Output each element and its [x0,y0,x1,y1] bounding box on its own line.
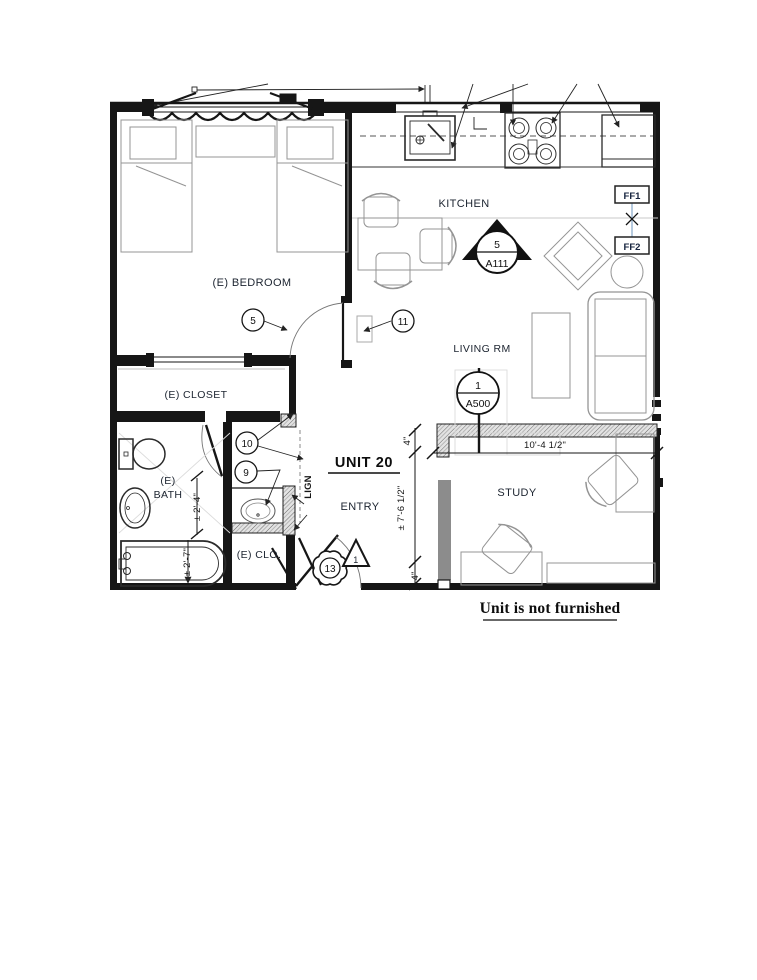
bed-left [121,120,192,252]
label-entry: ENTRY [340,501,379,513]
bed-right [277,120,348,252]
chair [376,253,410,285]
ff1-tag: FF1 [624,191,642,202]
lounge-chair [544,222,612,290]
keynote-numbers: 5 11 10 9 13 1 [241,316,408,575]
keynote-leaders [257,321,391,530]
chair [364,197,398,227]
keynote-11: 11 [398,317,409,328]
ff-tags: FF1 FF2 [615,186,649,254]
label-bedroom: (E) BEDROOM [213,277,292,289]
ff2-tag: FF2 [624,242,641,253]
desk-chair [479,518,536,575]
desk [616,434,654,512]
bedroom-door-swing [290,303,343,358]
study-furniture [461,434,655,585]
kitchen-fixtures [352,111,655,168]
unit-label: UNIT 20 [335,455,393,471]
label-living: LIVING RM [453,343,510,355]
label-study: STUDY [497,487,537,499]
bath-door-leaf [206,425,222,476]
dim-bath-width: ± 2'-4" [192,493,203,521]
section-sheet: A111 [486,258,509,270]
label-kitchen: KITCHEN [438,198,489,210]
ottoman [611,256,643,288]
label-clo: (E) CLO. [237,549,282,561]
dim-offset-bottom: 4" [410,571,421,580]
label-bath-1: (E) [160,475,175,487]
keynote-10: 10 [241,439,253,450]
section-marker-a111: 5 A111 [462,219,532,273]
detail-marker-a500: 1 A500 [457,372,499,414]
keynote-9: 9 [243,468,249,479]
align-note: LIGN [303,475,314,499]
dim-offset-top: 4" [402,436,413,445]
bathtub [121,541,226,586]
not-furnished-note: Unit is not furnished [480,600,621,617]
label-bath-2: BATH [154,489,183,501]
study-wall-endpost [438,580,450,589]
coffee-table [532,313,570,398]
bottom-note: Unit is not furnished [480,600,621,620]
chair [420,229,452,263]
study-gray-wall [438,480,451,580]
dim-entry-depth: ± 7'-6 1/2" [396,486,407,531]
credenza [547,563,655,583]
detail-sheet: A500 [466,398,491,410]
headboard-shelf [196,126,275,157]
keynote-5: 5 [250,316,256,327]
bedroom-furniture [121,120,372,342]
label-closet: (E) CLOSET [165,389,228,401]
floor-plan-drawing: 5 A111 1 A500 FF1 FF2 5 11 10 9 13 1 KIT… [0,0,757,980]
bath-sink [120,488,150,528]
detail-number: 1 [475,380,481,392]
delta-number: 1 [353,555,358,565]
kitchen-table [358,218,442,270]
unit-title: UNIT 20 [328,455,400,473]
desk [461,552,542,585]
dim-tub-width: ± 2'-7" [182,548,193,576]
dim-living-width: 10'-4 1/2" [524,440,566,451]
refrigerator [602,115,655,167]
keynote-13: 13 [324,564,336,575]
floor-plan-sheet: 5 A111 1 A500 FF1 FF2 5 11 10 9 13 1 KIT… [0,0,757,980]
section-number: 5 [494,239,500,251]
desk-chair [580,453,640,511]
toilet-bowl [133,439,165,469]
